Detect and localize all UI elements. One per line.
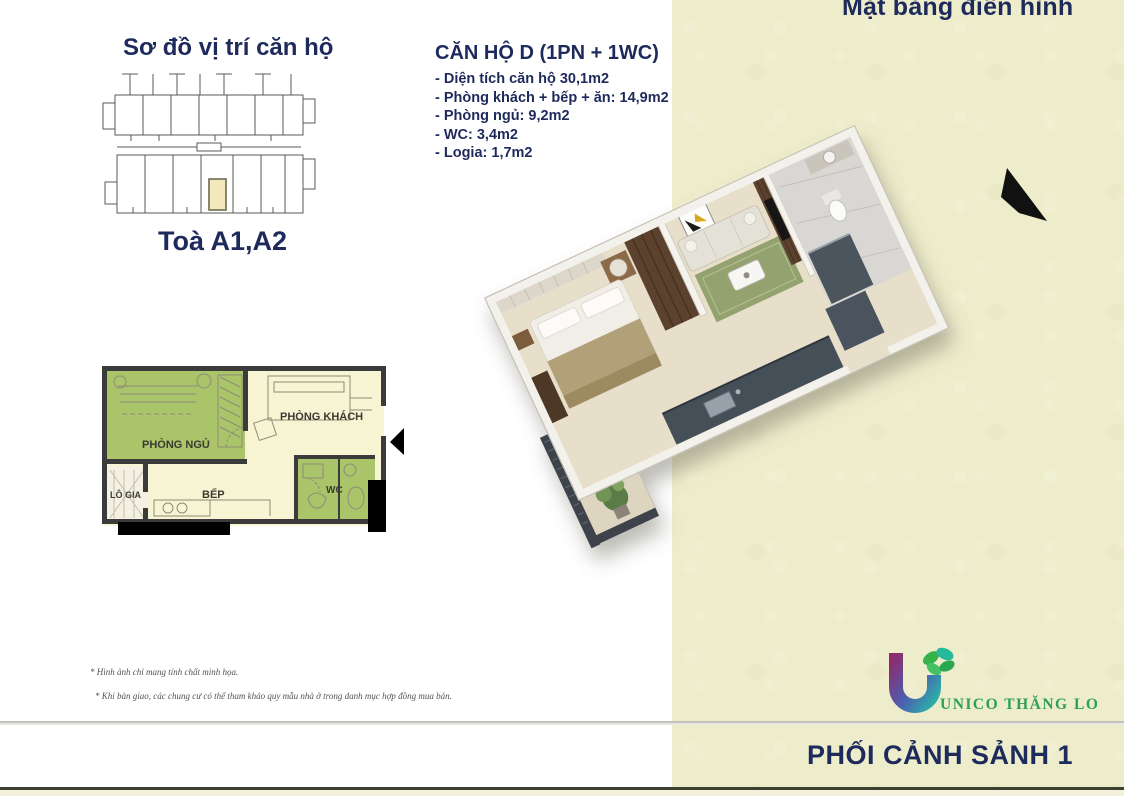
bottom-strip	[0, 790, 1124, 796]
footnote-line: * Hình ảnh chỉ mang tính chất minh họa.	[90, 666, 470, 679]
footnote-line: * Khi bàn giao, các chung cư có thể tham…	[95, 690, 470, 703]
render-3d-apartment	[477, 126, 970, 549]
footer-caption: PHỐI CẢNH SẢNH 1	[757, 740, 1123, 771]
site-plan-title: Sơ đồ vị trí căn hộ	[123, 34, 283, 62]
plan2d-label-wc: WC	[326, 485, 343, 496]
direction-arrow-icon	[1001, 168, 1047, 221]
site-plan-diagram	[95, 64, 323, 216]
site-plan-ticks-top	[122, 74, 291, 95]
logo-text: UNICO THĂNG LONG	[940, 696, 1097, 713]
floor-plan-2d: PHÒNG NGỦ PHÒNG KHÁCH LÔ GIA BẾP WC	[98, 358, 408, 538]
tower-label: Toà A1,A2	[158, 226, 287, 257]
render-3d	[430, 85, 1124, 665]
plan2d-corner-bar	[368, 480, 386, 532]
apartment-info-heading: CĂN HỘ D (1PN + 1WC)	[435, 42, 670, 65]
site-plan-highlighted-unit	[209, 179, 226, 210]
footnotes: * Hình ảnh chỉ mang tính chất minh họa. …	[90, 666, 470, 703]
logo-leaves-icon	[920, 645, 956, 677]
divider-top	[0, 721, 1124, 723]
plan2d-balcony-bar	[118, 522, 230, 535]
entrance-arrow-icon	[390, 428, 404, 455]
company-logo: UNICO THĂNG LONG	[882, 645, 1097, 719]
plan2d-label-living: PHÒNG KHÁCH	[280, 410, 363, 423]
site-plan-corridor	[117, 143, 301, 151]
plan2d-label-kitchen: BẾP	[202, 488, 225, 501]
plan2d-label-loggia: LÔ GIA	[110, 489, 141, 500]
page-title: Mặt bằng điển hình	[842, 0, 1073, 22]
site-plan-top-wing	[103, 95, 315, 141]
plan2d-label-bedroom: PHÒNG NGỦ	[142, 438, 210, 451]
